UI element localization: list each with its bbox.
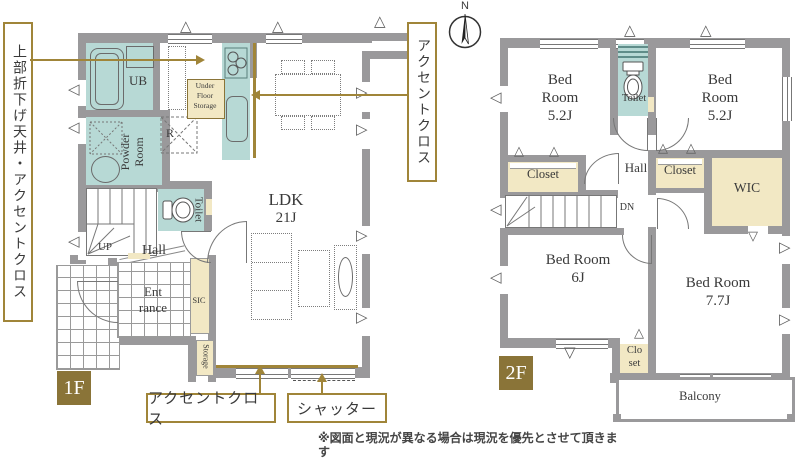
wall	[500, 228, 624, 235]
window-vent-icon: ▽	[564, 345, 576, 360]
chair-icon	[281, 116, 305, 130]
door-arc	[584, 153, 619, 184]
bedroom-name: Bed Room	[545, 251, 611, 269]
window-vent-icon: ▷	[356, 228, 368, 243]
arrowhead-icon	[255, 365, 265, 374]
room-label-hall-1f: Hall	[134, 243, 174, 260]
bedroom-size: 7.7J	[685, 292, 751, 310]
window-vent-icon: ▷	[779, 240, 791, 255]
disclaimer-text: ※図面と現況が異なる場合は現況を優先とさせて頂きます	[318, 431, 618, 459]
door-arc	[622, 235, 652, 264]
refrigerator-label: R	[163, 126, 177, 140]
window-vent-icon: ▷	[356, 85, 368, 100]
window-vent-icon: △	[624, 23, 636, 38]
window-vent-icon: ◁	[490, 90, 502, 105]
window-vent-icon: ▷	[356, 310, 368, 325]
bath-counter-icon	[126, 46, 154, 68]
stairs-dn-label: DN	[614, 202, 640, 214]
floor-plan-page: ◁ ◁ ◁ ▷ ▷ ▷ ▷ △ △ △ UB Under Floor Stora…	[0, 0, 800, 459]
room-label-ldk: LDK	[259, 190, 313, 210]
arrow-line	[259, 373, 261, 394]
wall	[768, 226, 790, 234]
closet-door-icon: △	[686, 142, 696, 155]
tv-icon	[338, 257, 353, 297]
coffee-table-icon	[298, 250, 330, 307]
bedroom-size: 5.2J	[689, 107, 751, 125]
callout-shutter: シャッター	[287, 393, 387, 423]
window	[690, 39, 745, 49]
room-label-powder: Powder Room	[118, 128, 152, 176]
arrowhead-icon	[251, 90, 260, 100]
floor2-badge: 2F	[499, 356, 533, 390]
closet-door-icon: △	[549, 145, 559, 158]
closet-line1: Clo	[621, 345, 648, 358]
entrance-line2: rance	[123, 300, 183, 316]
callout-ceiling-accent: 上部折下げ天井・アクセントクロス	[3, 22, 33, 322]
room-label-wic: WIC	[712, 180, 782, 196]
closet-door-icon: △	[658, 142, 668, 155]
stove-icon	[222, 45, 250, 91]
arrow-line	[321, 381, 323, 394]
door-arc	[207, 221, 247, 263]
window-vent-icon: ◁	[490, 270, 502, 285]
arrow-line	[260, 94, 407, 96]
sofa-icon	[251, 233, 292, 320]
wall	[500, 155, 586, 162]
room-label-closet-south: Clo set	[621, 345, 648, 370]
wall	[648, 150, 790, 158]
window-vent-icon: ▷	[779, 312, 791, 327]
room-label-sic: SIC	[188, 295, 210, 305]
room-size-ldk: 21J	[259, 209, 313, 227]
arrowhead-icon	[317, 373, 327, 382]
floor1-badge: 1F	[57, 371, 91, 405]
window-vent-icon: ◁	[490, 202, 502, 217]
callout-accent-top: アクセントクロス	[407, 22, 437, 182]
stairs-up-label: UP	[92, 241, 118, 254]
compass-icon	[447, 6, 483, 50]
window-vent-icon: △	[272, 19, 284, 34]
room-label-bedroom-se: Bed Room 7.7J	[685, 274, 751, 310]
bedroom-name: Bed Room	[529, 71, 591, 107]
window-vent-icon: ◁	[68, 82, 80, 97]
bedroom-size: 5.2J	[529, 107, 591, 125]
room-label-closet-west: Closet	[508, 167, 578, 182]
arrow-line	[30, 59, 198, 61]
sink-icon	[91, 156, 120, 183]
door-frame	[206, 199, 212, 215]
window-vent-icon: ◁	[68, 234, 80, 249]
stairs-icon	[505, 195, 617, 228]
closet-door-icon: △	[514, 145, 524, 158]
wall	[78, 33, 86, 263]
window	[168, 34, 212, 44]
window-vent-icon: ▷	[356, 122, 368, 137]
balcony-post	[787, 414, 795, 422]
wall	[704, 226, 748, 234]
bedroom-name: Bed Room	[689, 71, 751, 107]
arrowhead-icon	[196, 55, 205, 65]
room-label-ub: UB	[118, 73, 158, 89]
door-arc	[657, 198, 689, 229]
room-label-storage: Storage	[198, 339, 211, 375]
window-vent-icon: △	[374, 14, 386, 29]
accent-wall-kitchen	[253, 43, 256, 158]
bedroom-size: 6J	[545, 269, 611, 287]
callout-accent-bottom: アクセントクロス	[146, 393, 276, 423]
accent-wall-bottom	[216, 365, 358, 368]
wall	[78, 33, 372, 43]
window	[540, 39, 598, 49]
window-vent-icon: ◁	[68, 120, 80, 135]
room-label-toilet-2f: Toilet	[617, 93, 651, 106]
chair-icon	[311, 60, 335, 74]
entrance-line1: Ent	[123, 284, 183, 300]
room-label-bedroom-ne: Bed Room 5.2J	[689, 71, 751, 125]
window-vent-icon: △	[700, 23, 712, 38]
toilet-shelf-icon	[618, 46, 648, 60]
wall	[648, 38, 656, 135]
window	[266, 34, 302, 44]
kitchen-sink-icon	[226, 96, 248, 142]
closet-door-icon: △	[634, 327, 644, 340]
under-floor-storage-label: Under Floor Storage	[187, 81, 223, 111]
closet-line2: set	[621, 358, 648, 371]
window-vent-icon: △	[180, 19, 192, 34]
room-label-bedroom-nw: Bed Room 5.2J	[529, 71, 591, 125]
balcony-post	[613, 414, 621, 422]
wall	[188, 336, 196, 382]
room-label-entrance: Ent rance	[123, 284, 183, 315]
cabinet-icon	[168, 46, 186, 110]
door-arc	[613, 118, 648, 151]
chair-icon	[311, 116, 335, 130]
chair-icon	[281, 60, 305, 74]
room-label-balcony: Balcony	[652, 389, 748, 404]
room-label-toilet-1f: Toilet	[190, 188, 205, 232]
window	[782, 77, 792, 121]
room-label-bedroom-sw: Bed Room 6J	[545, 251, 611, 287]
room-label-closet-mid: Closet	[654, 163, 706, 178]
room-label-hall-2f: Hall	[616, 160, 656, 176]
door-arc	[181, 231, 211, 263]
closet-door-icon: ▽	[748, 230, 758, 243]
bedroom-name: Bed Room	[685, 274, 751, 292]
